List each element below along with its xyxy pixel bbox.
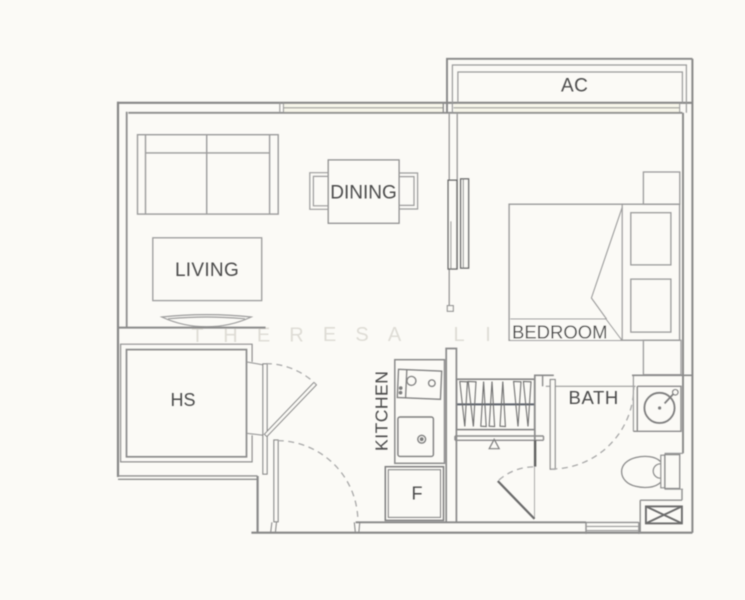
svg-text:LIVING: LIVING (175, 260, 239, 281)
svg-text:KITCHEN: KITCHEN (371, 371, 391, 451)
svg-text:AC: AC (561, 76, 588, 97)
svg-text:S: S (355, 324, 368, 346)
svg-text:F: F (412, 484, 423, 504)
svg-text:BEDROOM: BEDROOM (512, 322, 608, 343)
svg-text:L: L (453, 324, 464, 346)
svg-text:BATH: BATH (569, 387, 619, 408)
svg-text:R: R (289, 325, 303, 347)
svg-text:DINING: DINING (330, 183, 397, 204)
svg-text:E: E (323, 324, 336, 346)
svg-text:A: A (388, 324, 402, 346)
svg-text:HS: HS (171, 390, 196, 410)
svg-text:I: I (485, 324, 491, 346)
